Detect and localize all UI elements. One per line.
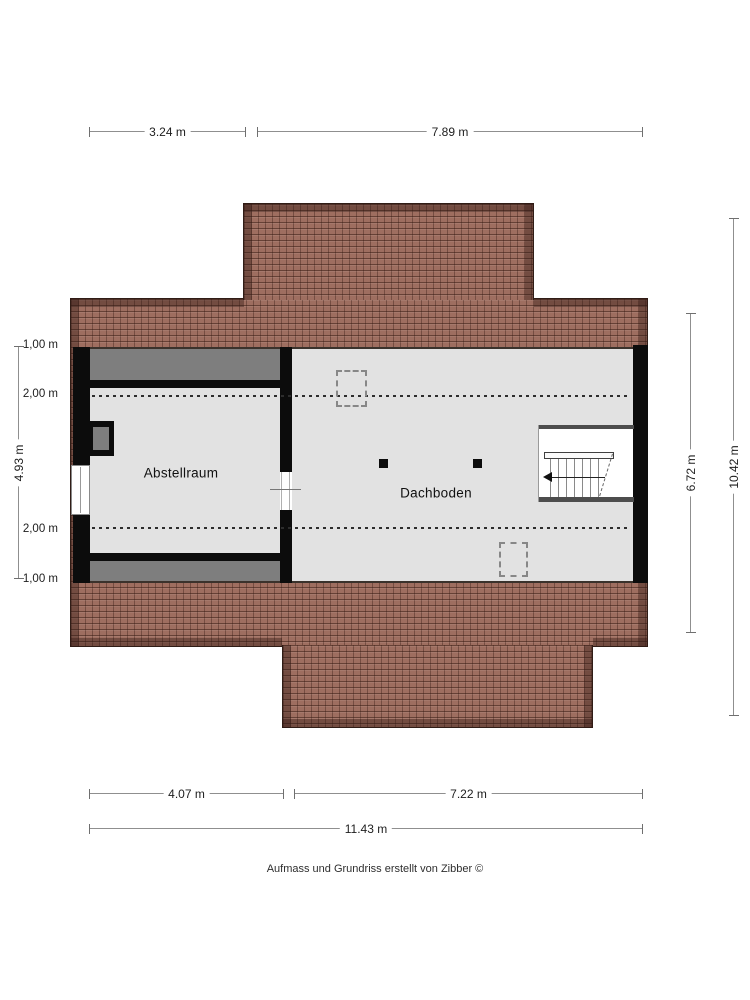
dim-left-overall: 4.93 m xyxy=(18,346,19,579)
dim-bottom-right-section: 7.22 m xyxy=(294,793,643,794)
roof-edge-band xyxy=(70,298,244,307)
height-label-top-1m: 1,00 m xyxy=(0,339,58,351)
wall-right-gable xyxy=(633,345,648,583)
height-label-top-2m: 2,00 m xyxy=(0,388,58,400)
stair-top-edge xyxy=(539,425,634,429)
stair-railing xyxy=(544,452,614,459)
window-glass-line xyxy=(80,467,81,513)
stair-tread xyxy=(590,459,591,497)
dim-left-overall-label: 4.93 m xyxy=(12,439,26,486)
slope-area-top xyxy=(90,349,281,380)
dim-right-overall-label: 10.42 m xyxy=(727,440,741,493)
stair-direction-arrow xyxy=(543,472,552,482)
dim-bottom-total-label: 11.43 m xyxy=(340,822,392,836)
height-label-bottom-2m: 2,00 m xyxy=(0,523,58,535)
dim-top-right-label: 7.89 m xyxy=(427,125,474,139)
roof-area-top-extension xyxy=(243,203,534,300)
stair-winder-line xyxy=(599,454,613,496)
roof-edge-band xyxy=(282,719,593,728)
roof-edge-band xyxy=(534,298,648,307)
roof-edge-band xyxy=(243,203,252,300)
roof-edge-band xyxy=(584,645,593,728)
stair-tread xyxy=(582,459,583,497)
roof-edge-band xyxy=(593,638,648,647)
dim-bottom-right-label: 7.22 m xyxy=(445,787,492,801)
ceiling-height-line-lower xyxy=(92,527,631,529)
stair-tread xyxy=(598,459,599,497)
roof-edge-band xyxy=(70,638,282,647)
floorplan-canvas: Abstellraum Dachboden 3.24 m 7.89 m 4.07… xyxy=(0,0,750,1000)
roof-edge-band xyxy=(525,203,534,300)
wall-abstellraum-bottom xyxy=(90,553,292,561)
dim-right-overall: 10.42 m xyxy=(733,218,734,716)
slope-area-bottom xyxy=(90,561,281,581)
door-frame-line xyxy=(289,472,290,510)
chimney-niche-core xyxy=(93,427,109,450)
staircase xyxy=(538,425,633,502)
roof-edge-band xyxy=(243,203,534,212)
room-label-dachboden: Dachboden xyxy=(400,486,472,501)
roof-window-lower xyxy=(499,542,528,577)
dim-bottom-left-section: 4.07 m xyxy=(89,793,284,794)
dim-right-inner: 6.72 m xyxy=(690,313,691,633)
door-opening xyxy=(280,472,292,510)
column-marker-left xyxy=(379,459,388,468)
dim-bottom-total: 11.43 m xyxy=(89,828,643,829)
dim-top-right-section: 7.89 m xyxy=(257,131,643,132)
stair-tread xyxy=(558,459,559,497)
roof-window-upper xyxy=(336,370,367,407)
room-label-abstellraum: Abstellraum xyxy=(144,466,219,481)
footer-credit: Aufmass und Grundriss erstellt von Zibbe… xyxy=(0,863,750,875)
stair-direction-line xyxy=(550,477,605,478)
wall-abstellraum-top xyxy=(90,380,292,388)
stair-bottom-edge xyxy=(539,497,634,502)
door-symbol-line xyxy=(270,489,301,490)
roof-edge-band xyxy=(282,645,291,728)
column-marker-right xyxy=(473,459,482,468)
window-left xyxy=(71,465,90,515)
dim-top-left-label: 3.24 m xyxy=(144,125,191,139)
dim-top-left-section: 3.24 m xyxy=(89,131,246,132)
stair-tread xyxy=(566,459,567,497)
stair-tread xyxy=(574,459,575,497)
door-frame-line xyxy=(281,472,282,510)
height-label-bottom-1m: 1,00 m xyxy=(0,573,58,585)
dim-right-inner-label: 6.72 m xyxy=(684,450,698,497)
roof-area-bottom-extension xyxy=(282,645,593,728)
dim-bottom-left-label: 4.07 m xyxy=(163,787,210,801)
